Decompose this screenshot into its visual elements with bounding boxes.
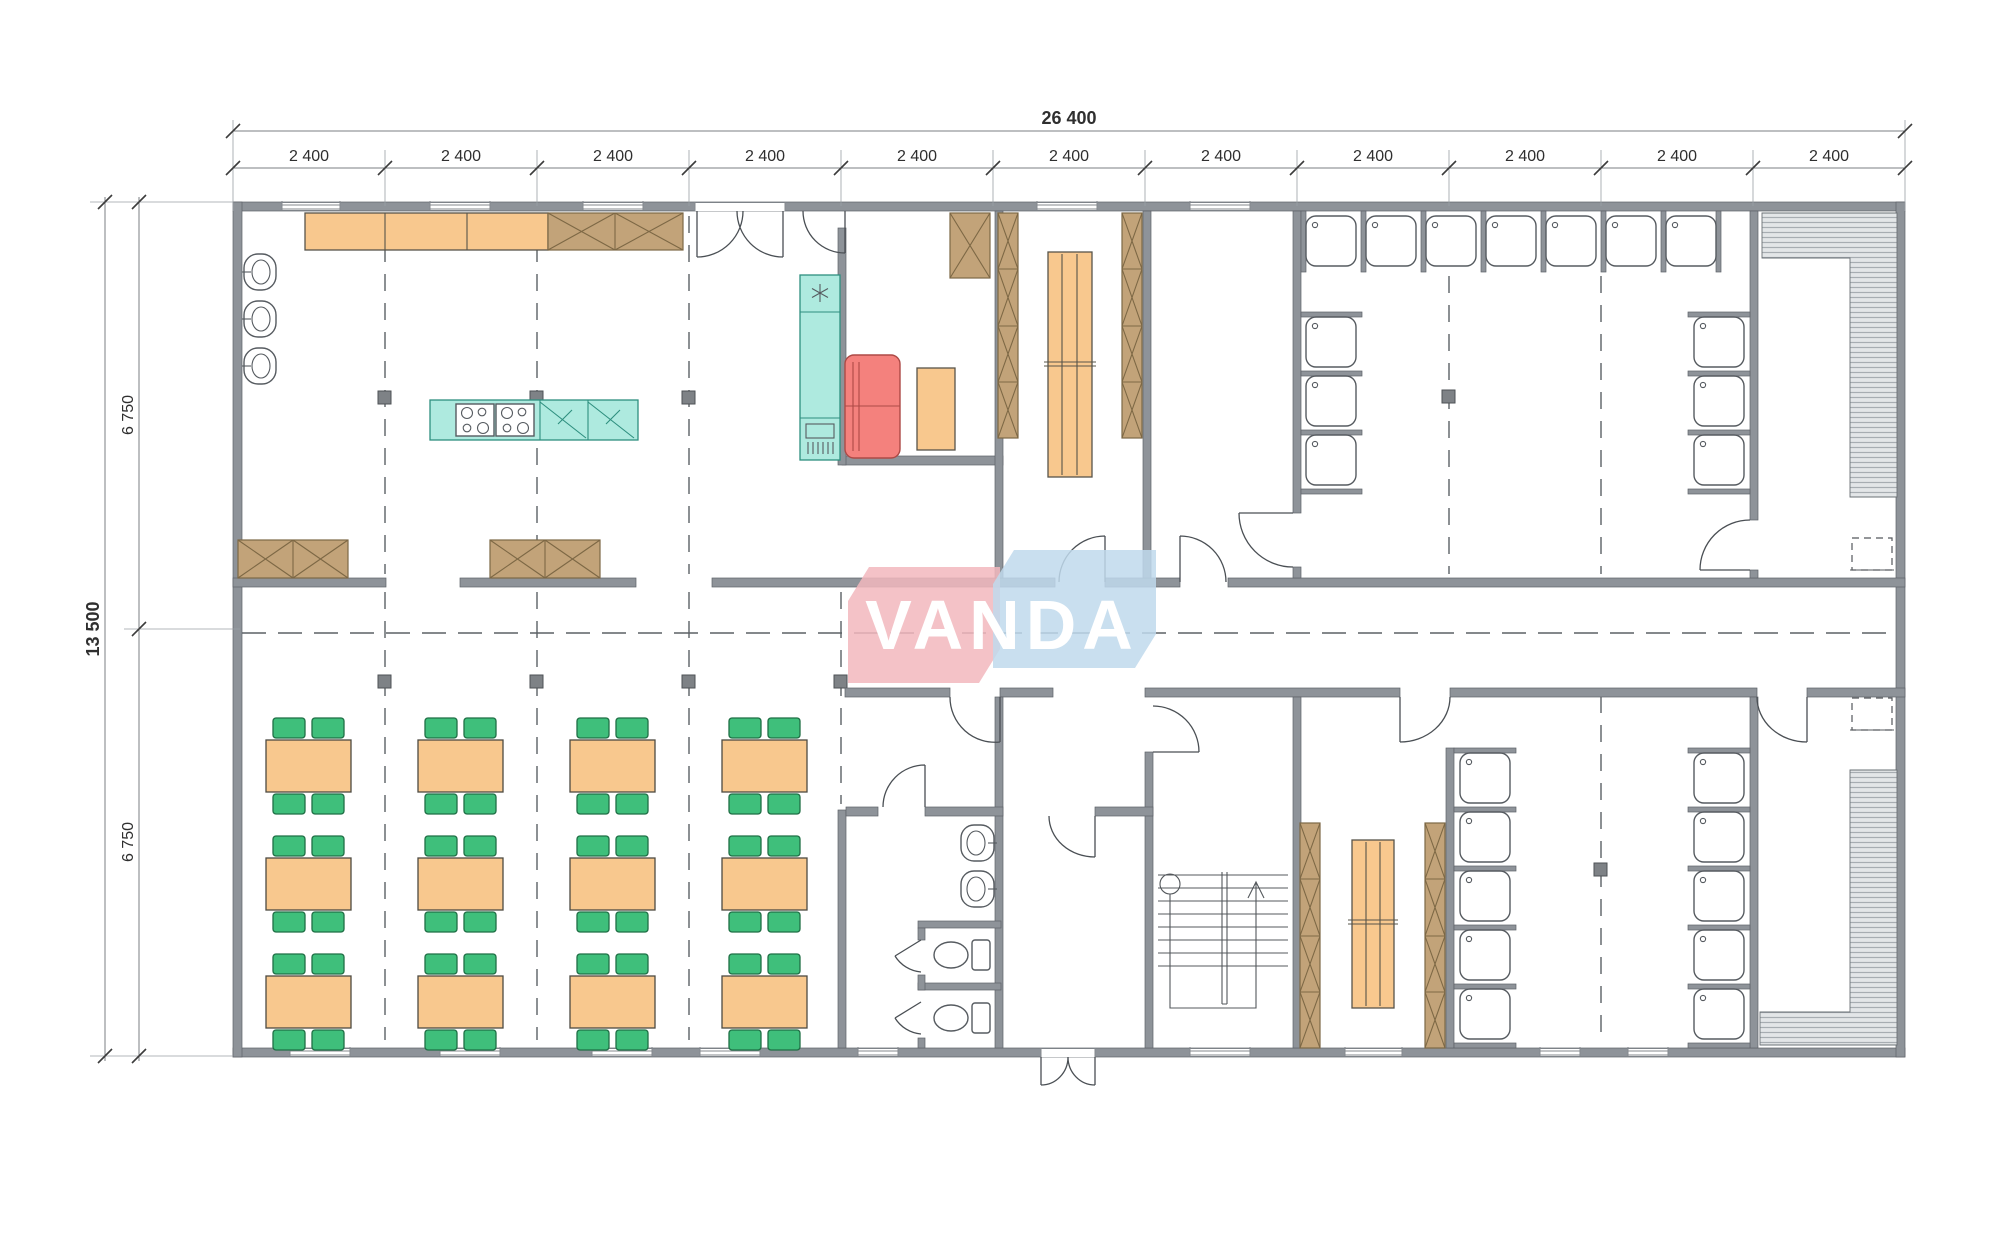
dim-segment: 2 400 xyxy=(289,148,329,165)
shower-stall xyxy=(1306,435,1356,485)
shower-stall xyxy=(1460,989,1510,1039)
drying-room-1 xyxy=(1762,213,1897,570)
shower-stall xyxy=(1306,317,1356,367)
bench xyxy=(1348,840,1398,1008)
shower-stall xyxy=(1306,216,1356,266)
door-anteroom xyxy=(1180,536,1226,582)
dim-segment: 2 400 xyxy=(1809,148,1849,165)
dim-segment: 2 400 xyxy=(745,148,785,165)
wall-exterior-west xyxy=(233,202,242,1057)
washbasin xyxy=(961,825,997,907)
shower-stall xyxy=(1366,216,1416,266)
door-shower-1 xyxy=(1239,513,1293,567)
changing-room-2 xyxy=(1300,823,1445,1048)
dining-table xyxy=(722,954,807,1050)
annex-room xyxy=(845,213,990,458)
dim-segment: 2 400 xyxy=(897,148,937,165)
dining-table xyxy=(570,836,655,932)
dimension-left: 13 500 6 750 6 750 xyxy=(83,195,240,1063)
wardrobe-strip xyxy=(1425,823,1445,1048)
shower-stall xyxy=(1460,871,1510,921)
dining-table xyxy=(722,836,807,932)
kitchen-storage-hatched xyxy=(238,540,600,578)
dining-table xyxy=(570,718,655,814)
wardrobe-strip xyxy=(998,213,1018,438)
shower-room-1 xyxy=(1306,216,1744,485)
kitchen-cabinet-hatched xyxy=(548,213,683,250)
shower-stall xyxy=(1426,216,1476,266)
dining-table xyxy=(266,718,351,814)
dim-segment: 2 400 xyxy=(1201,148,1241,165)
dim-segment: 2 400 xyxy=(1657,148,1697,165)
dimension-top: 26 400 2 400 2 400 2 400 2 400 2 400 2 4… xyxy=(226,108,1912,211)
stove-icon xyxy=(456,404,494,436)
dining-table xyxy=(570,954,655,1050)
door-wc-stall-1 xyxy=(895,940,921,972)
shower-stall xyxy=(1694,812,1744,862)
dim-segment: 2 400 xyxy=(1353,148,1393,165)
door-entrance xyxy=(1041,1057,1095,1085)
door-kitchen-main xyxy=(697,211,783,257)
dining-table xyxy=(266,836,351,932)
toilet xyxy=(934,1003,990,1033)
door-drying-2 xyxy=(1757,697,1807,742)
wc-block xyxy=(934,825,997,1033)
dim-segment: 2 400 xyxy=(441,148,481,165)
door-vestibule xyxy=(1049,816,1095,857)
stair-treads xyxy=(1158,875,1288,966)
kitchen-island xyxy=(430,400,638,440)
shower-stall xyxy=(1694,435,1744,485)
stove-icon xyxy=(496,404,534,436)
wardrobe-strip xyxy=(1122,213,1142,438)
shower-stall xyxy=(1306,376,1356,426)
shower-stall xyxy=(1606,216,1656,266)
shower-stall xyxy=(1486,216,1536,266)
dining-table xyxy=(722,718,807,814)
door-wc-inner xyxy=(883,765,925,807)
dining-table xyxy=(418,718,503,814)
changing-room-1 xyxy=(998,213,1142,477)
shower-stall xyxy=(1546,216,1596,266)
door-stairwell xyxy=(1153,706,1199,752)
stair-walk-line xyxy=(1170,894,1256,1008)
watermark: VANDA xyxy=(848,550,1156,683)
dim-segment: 6 750 xyxy=(120,395,137,435)
kitchen-counter xyxy=(305,213,548,250)
dim-total-height: 13 500 xyxy=(83,601,103,656)
door-wc-stall-2 xyxy=(895,1002,921,1034)
floor-plan-page: VANDA 26 400 2 400 2 400 2 400 2 400 2 4… xyxy=(0,0,2000,1235)
storage-box-hatched xyxy=(950,213,990,278)
shower-stall xyxy=(1694,930,1744,980)
door-wc-lobby xyxy=(950,697,1000,742)
duct-shaft xyxy=(1852,538,1892,570)
door-drying-1 xyxy=(1700,520,1750,570)
watermark-text: VANDA xyxy=(865,586,1139,664)
shower-stall xyxy=(1460,812,1510,862)
door-changing-2 xyxy=(1400,697,1450,742)
shower-stall xyxy=(1694,989,1744,1039)
duct-shaft xyxy=(1852,698,1892,730)
washbasin xyxy=(242,254,276,384)
dim-total-width: 26 400 xyxy=(1041,108,1096,128)
dining-table xyxy=(418,836,503,932)
shower-stall xyxy=(1460,930,1510,980)
shower-room-2 xyxy=(1460,753,1744,1039)
toilet xyxy=(934,940,990,970)
wardrobe-strip xyxy=(1300,823,1320,1048)
kitchen-tall-unit xyxy=(800,275,840,460)
shower-stall xyxy=(1666,216,1716,266)
worktable xyxy=(917,368,955,450)
stairwell xyxy=(1158,872,1288,1008)
shower-stall xyxy=(1694,317,1744,367)
dim-segment: 2 400 xyxy=(1049,148,1089,165)
shower-stall xyxy=(1460,753,1510,803)
shower-stall xyxy=(1694,871,1744,921)
drying-room-2 xyxy=(1760,698,1897,1045)
drying-rack-area xyxy=(1762,213,1897,497)
dining-table xyxy=(266,954,351,1050)
red-appliance xyxy=(845,355,900,458)
shower-stall xyxy=(1694,753,1744,803)
dim-segment: 6 750 xyxy=(120,822,137,862)
drying-rack-area xyxy=(1760,770,1897,1045)
stair-start-icon xyxy=(1160,874,1180,894)
bench xyxy=(1044,252,1096,477)
dim-segment: 2 400 xyxy=(593,148,633,165)
dim-segment: 2 400 xyxy=(1505,148,1545,165)
shower-stall xyxy=(1694,376,1744,426)
floor-plan-canvas: VANDA 26 400 2 400 2 400 2 400 2 400 2 4… xyxy=(0,0,2000,1235)
dining-table xyxy=(418,954,503,1050)
